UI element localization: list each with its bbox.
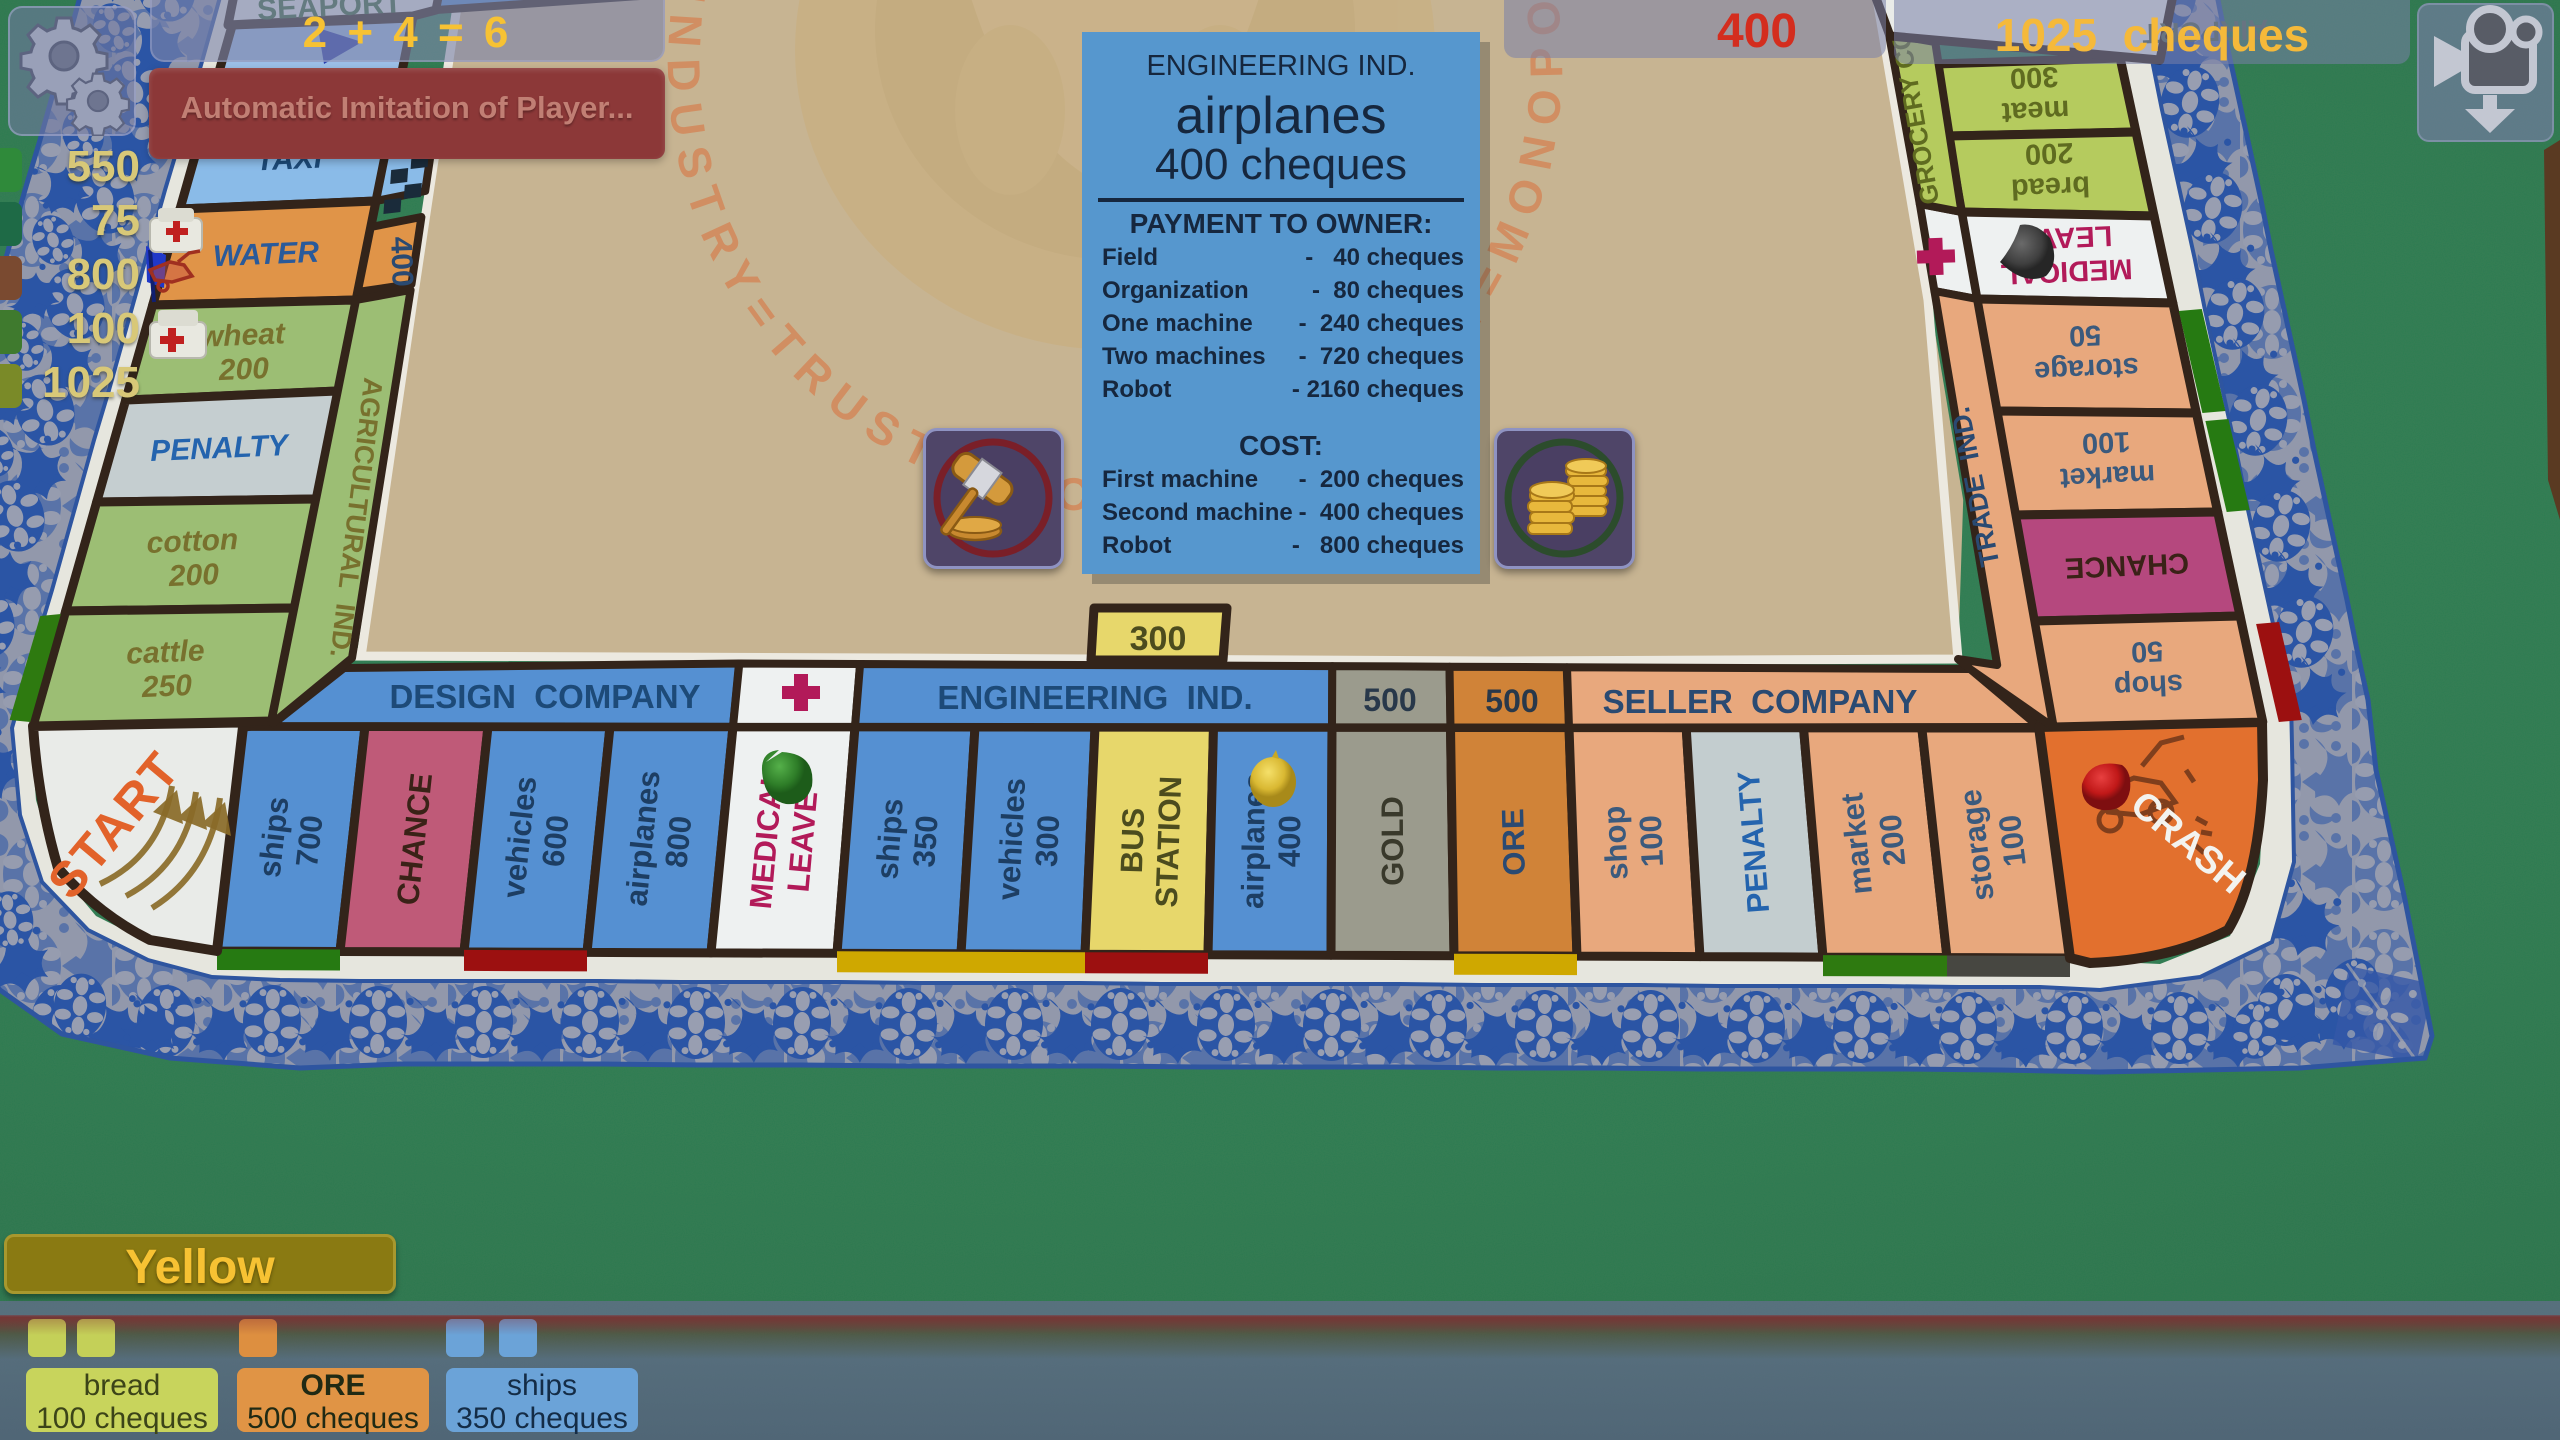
svg-text:vehicles: vehicles: [991, 777, 1032, 901]
svg-text:400: 400: [384, 236, 419, 287]
svg-text:storage: storage: [2034, 351, 2140, 388]
svg-text:cattle: cattle: [126, 634, 206, 670]
svg-text:50: 50: [2130, 634, 2164, 667]
svg-text:cotton: cotton: [146, 523, 239, 560]
svg-text:STATION: STATION: [1149, 775, 1189, 908]
svg-text:200: 200: [167, 558, 220, 593]
svg-text:CHANCE: CHANCE: [2064, 546, 2189, 583]
svg-text:DESIGN COMPANY: DESIGN COMPANY: [389, 678, 700, 715]
svg-text:shop: shop: [1596, 805, 1634, 881]
svg-text:wheat: wheat: [199, 317, 287, 354]
svg-text:ships: ships: [869, 797, 910, 880]
svg-text:SELLER COMPANY: SELLER COMPANY: [1603, 683, 1918, 720]
svg-text:600: 600: [535, 813, 575, 868]
svg-text:100: 100: [2081, 425, 2131, 459]
svg-text:350: 350: [906, 814, 945, 868]
svg-text:250: 250: [140, 669, 193, 704]
svg-text:BUS: BUS: [1114, 807, 1151, 874]
svg-text:300: 300: [1130, 620, 1187, 658]
svg-text:GOLD: GOLD: [1375, 796, 1410, 886]
svg-text:200: 200: [2024, 136, 2074, 170]
svg-text:ENGINEERING IND.: ENGINEERING IND.: [937, 679, 1252, 716]
svg-text:100: 100: [1992, 813, 2033, 869]
svg-text:300: 300: [2009, 60, 2059, 94]
svg-text:market: market: [2059, 458, 2156, 494]
svg-text:700: 700: [289, 813, 330, 868]
svg-text:200: 200: [1872, 813, 1912, 868]
svg-text:ORE: ORE: [1495, 808, 1532, 876]
svg-text:500: 500: [1485, 683, 1538, 719]
svg-text:400: 400: [1272, 815, 1308, 867]
svg-text:meat: meat: [2001, 94, 2070, 129]
svg-text:bread: bread: [2010, 169, 2090, 204]
svg-text:800: 800: [658, 814, 698, 869]
svg-text:shop: shop: [2113, 667, 2184, 702]
svg-text:WATER: WATER: [212, 236, 320, 274]
svg-text:300: 300: [1029, 814, 1067, 867]
svg-text:500: 500: [1363, 682, 1416, 718]
svg-text:50: 50: [2068, 318, 2102, 351]
svg-text:100: 100: [1633, 814, 1670, 867]
svg-text:200: 200: [217, 352, 270, 387]
svg-text:PENALTY: PENALTY: [149, 429, 291, 468]
